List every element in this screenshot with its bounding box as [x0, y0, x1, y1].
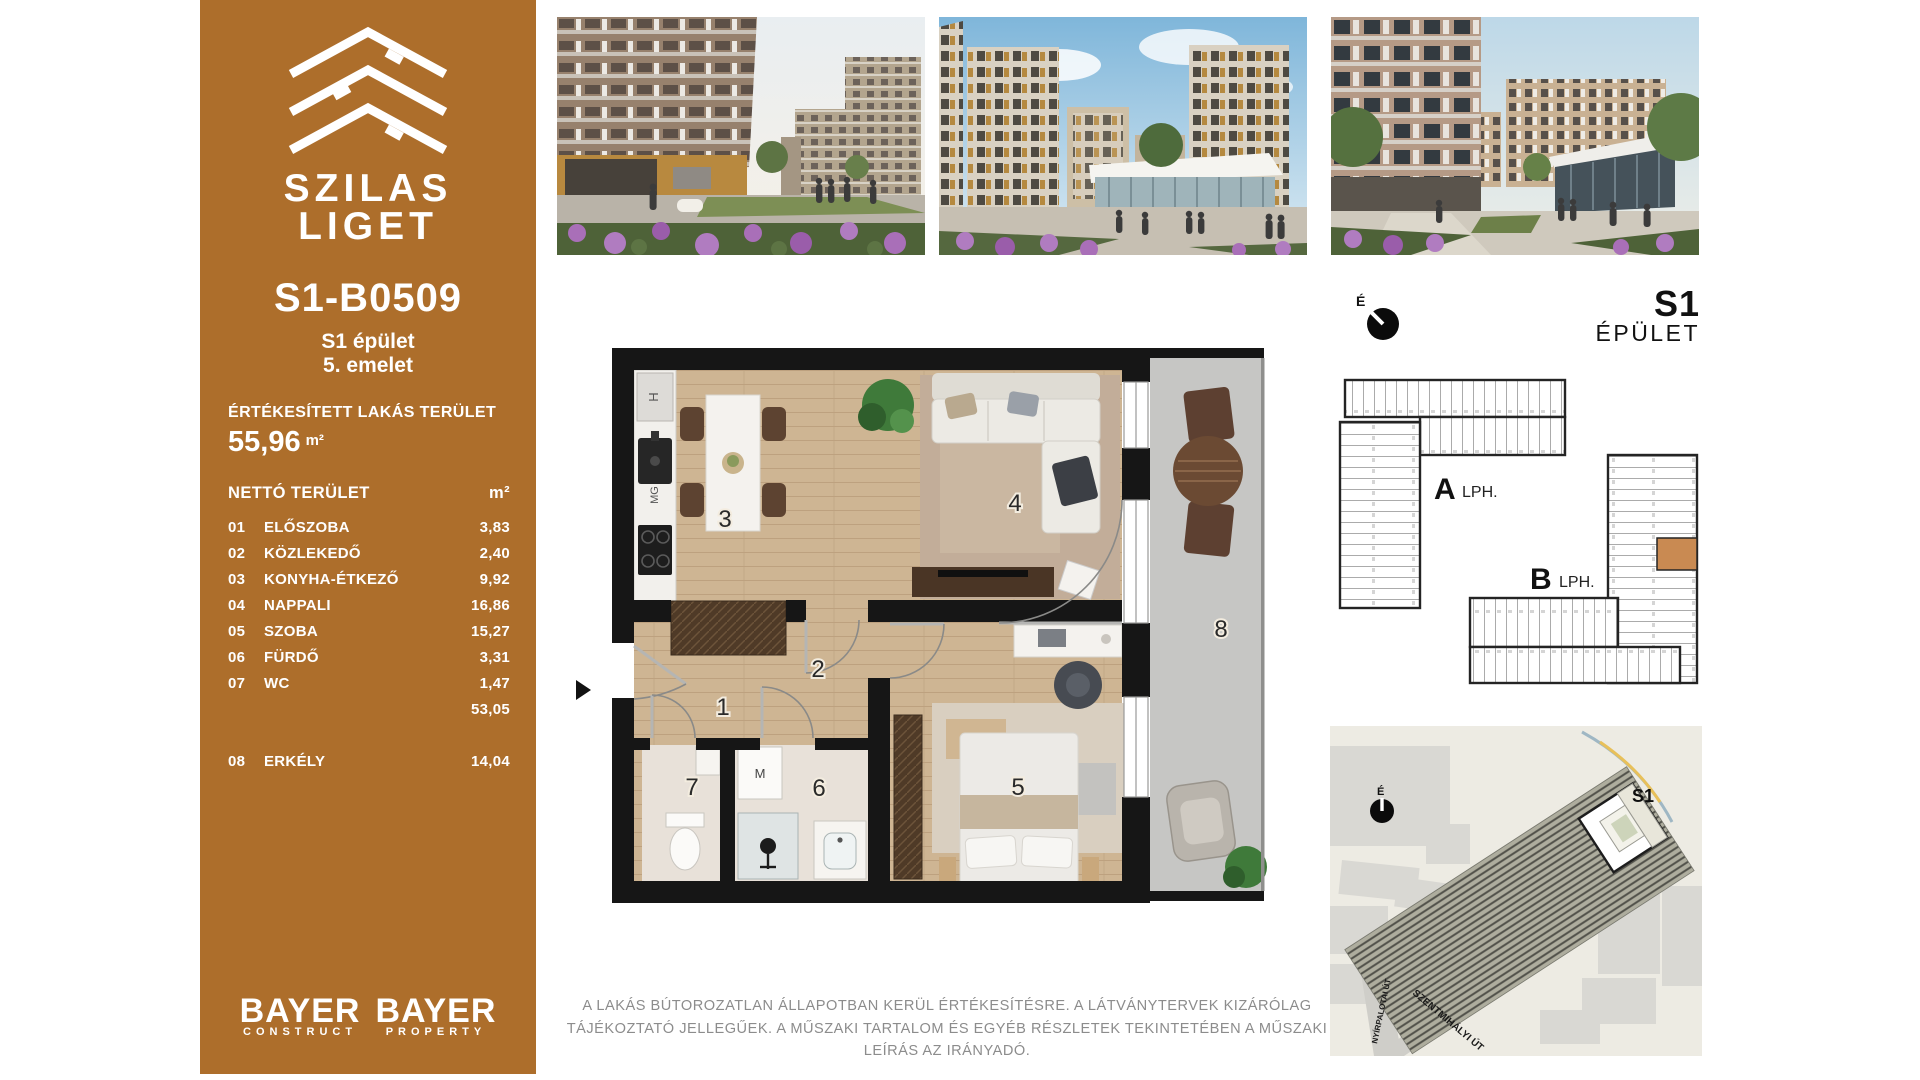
windows: [1124, 382, 1148, 797]
render-street-view: [1331, 17, 1699, 255]
render-courtyard-view: [557, 17, 925, 255]
room-number-5: 5: [1011, 774, 1024, 801]
entrance-arrow-icon: [576, 680, 591, 700]
kitchen-counter: H MG: [634, 370, 676, 601]
unit-subtitle: S1 épület 5. emelet: [200, 330, 536, 378]
net-area-table: 01 ELŐSZOBA 3,83 02 KÖZLEKEDŐ 2,40 03 KO…: [228, 514, 510, 774]
sold-area-unit: m²: [306, 432, 324, 449]
flower-bed: [557, 222, 925, 255]
core-b-label: B LPH.: [1530, 563, 1595, 596]
net-area-label: NETTÓ TERÜLET: [228, 484, 370, 503]
table-row: 07 WC 1,47: [228, 670, 510, 696]
toilet-tank: [666, 813, 704, 827]
room-number-2: 2: [811, 656, 824, 683]
brand-line2: LIGET: [200, 208, 536, 246]
building-title-word: ÉPÜLET: [1470, 320, 1700, 346]
nightstand: [1082, 857, 1099, 881]
core-a-letter: A: [1434, 473, 1456, 506]
building-title-id: S1: [1470, 288, 1700, 320]
table-row: 01 ELŐSZOBA 3,83: [228, 514, 510, 540]
table-row: 02 KÖZLEKEDŐ 2,40: [228, 540, 510, 566]
unit-id: S1-B0509: [200, 276, 536, 321]
bedroom-wardrobe: [894, 715, 922, 879]
brand-name: SZILAS LIGET: [200, 170, 536, 246]
brand-line1: SZILAS: [200, 170, 536, 208]
core-b-letter: B: [1530, 563, 1552, 596]
unit-building: S1 épület: [200, 330, 536, 354]
core-a-label: A LPH.: [1434, 473, 1498, 506]
table-subtotal-row: 53,05: [228, 696, 510, 722]
net-area-unit-header: m²: [489, 484, 510, 503]
nightstand: [939, 857, 956, 881]
sidebar: SZILAS LIGET S1-B0509 S1 épület 5. emele…: [200, 0, 536, 1074]
fridge-label: H: [646, 392, 661, 401]
apartment-floor-plan: H MG: [610, 343, 1270, 908]
lawn: [1471, 215, 1541, 233]
table-row: 05 SZOBA 15,27: [228, 618, 510, 644]
table-row: 06 FÜRDŐ 3,31: [228, 644, 510, 670]
room-number-1: 1: [716, 694, 729, 721]
site-map: S1 É NYÍRPALOTAI ÚT SZENTMIHÁLYI ÚT: [1330, 726, 1702, 1056]
szilas-liget-logo: [273, 22, 463, 170]
tree: [756, 141, 788, 173]
entry-wardrobe: [671, 601, 786, 655]
highlighted-unit: [1657, 538, 1697, 570]
room-number-6: 6: [812, 775, 825, 802]
bayer-property-logo: BAYER PROPERTY: [376, 996, 497, 1038]
north-compass-keyplan: É: [1344, 290, 1404, 346]
building-plan-title: S1 ÉPÜLET: [1470, 288, 1700, 346]
washer-label: M: [755, 766, 766, 781]
datasheet-page: SZILAS LIGET S1-B0509 S1 épület 5. emele…: [0, 0, 1920, 1080]
table-row: 04 NAPPALI 16,86: [228, 592, 510, 618]
developer-logos: BAYER CONSTRUCT BAYER PROPERTY: [200, 996, 536, 1038]
site-building-label: S1: [1632, 786, 1654, 806]
compass-letter: É: [1377, 785, 1384, 798]
microwave-label: MG: [649, 486, 661, 504]
net-subtotal: 53,05: [471, 701, 510, 718]
disclaimer-text: A LAKÁS BÚTOROZATLAN ÁLLAPOTBAN KERÜL ÉR…: [555, 995, 1339, 1063]
render-plaza-view: [939, 17, 1307, 255]
core-b-word: LPH.: [1559, 574, 1595, 591]
compass-letter: É: [1356, 293, 1365, 309]
sold-area-value: 55,96m²: [228, 426, 510, 459]
core-a-word: LPH.: [1462, 484, 1498, 501]
left-tower: [967, 47, 1059, 207]
bed: [939, 733, 1099, 886]
unit-floor: 5. emelet: [200, 354, 536, 378]
room-number-7: 7: [685, 774, 698, 801]
tv: [938, 570, 1028, 577]
room-number-4: 4: [1008, 490, 1021, 517]
tree: [1139, 123, 1183, 167]
building-key-plan: A LPH. B LPH.: [1330, 368, 1702, 700]
toilet-bowl: [670, 828, 700, 870]
bayer-construct-logo: BAYER CONSTRUCT: [240, 996, 361, 1038]
net-area-header: NETTÓ TERÜLET m²: [228, 484, 510, 503]
room-number-3: 3: [718, 506, 731, 533]
balcony-railing: [1261, 358, 1265, 891]
room-number-8: 8: [1214, 616, 1227, 643]
background-tower: [845, 57, 921, 207]
table-row-balcony: 08 ERKÉLY 14,04: [228, 748, 510, 774]
sold-area-label: ÉRTÉKESÍTETT LAKÁS TERÜLET: [228, 404, 510, 422]
table-row: 03 KONYHA-ÉTKEZŐ 9,92: [228, 566, 510, 592]
